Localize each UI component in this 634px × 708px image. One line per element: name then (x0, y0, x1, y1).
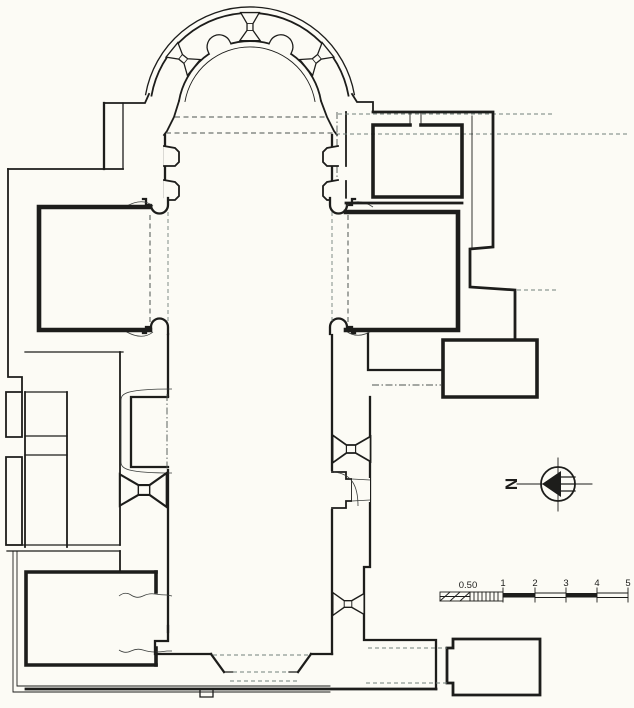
bottom-left-room (26, 572, 172, 665)
apse (146, 7, 355, 102)
window-splay (120, 473, 167, 507)
north-label: N (502, 478, 521, 490)
church-floor-plan: N 0.50 1 2 3 4 5 (0, 0, 634, 708)
scale-label-1: 1 (500, 578, 505, 589)
annex-room (372, 290, 558, 397)
apse-window-splay (166, 42, 201, 76)
scale-label-2: 2 (532, 578, 537, 589)
north-arrow: N (502, 458, 592, 511)
scale-bar: 0.50 1 2 3 4 5 (440, 578, 631, 602)
sacristy (346, 112, 515, 338)
apse-window-splay (300, 42, 335, 76)
window-splay (333, 435, 371, 463)
scale-label-0-50: 0.50 (459, 580, 478, 591)
scale-label-5: 5 (625, 578, 630, 589)
nave (120, 198, 436, 689)
apse-window-splay (240, 13, 260, 41)
chancel (8, 94, 629, 208)
scale-label-3: 3 (563, 578, 568, 589)
outbuilding (366, 639, 540, 695)
left-chapel (8, 169, 150, 392)
scanned-floor-plan-page: N 0.50 1 2 3 4 5 (0, 0, 634, 708)
window-splay (333, 593, 364, 616)
scale-label-4: 4 (594, 578, 599, 589)
